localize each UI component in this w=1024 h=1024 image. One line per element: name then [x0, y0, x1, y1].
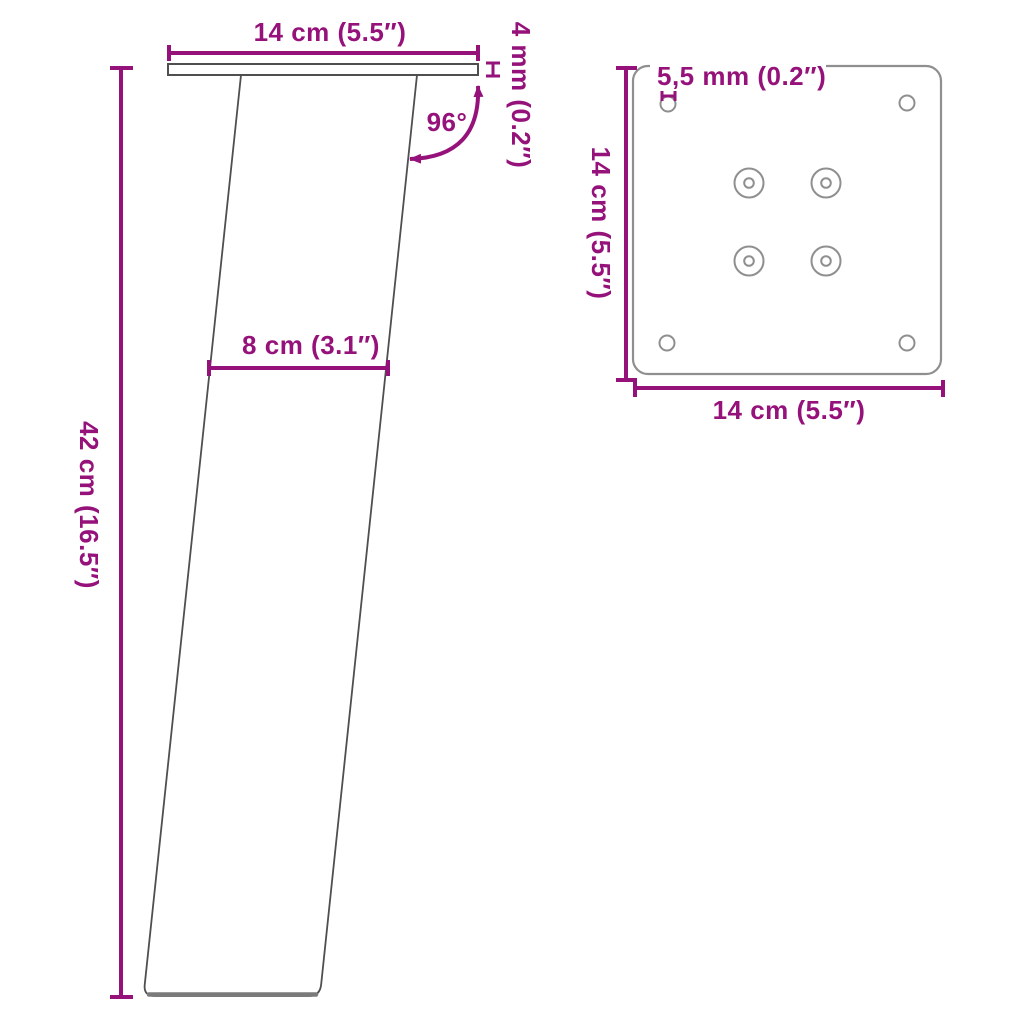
- leg-outline: [145, 75, 417, 996]
- dim-leg-width-label: 8 cm (3.1″): [242, 330, 380, 360]
- dim-plate-depth: 14 cm (5.5″): [586, 68, 637, 380]
- dim-angle-label: 96°: [427, 107, 468, 137]
- center-hole-washer-bottom-right: [812, 247, 841, 276]
- diagram-canvas: 14 cm (5.5″) 4 mm (0.2″) 96° 8 cm (3.1″)…: [0, 0, 1024, 1024]
- mounting-plate: [633, 66, 941, 374]
- corner-hole-top-right: [900, 96, 915, 111]
- dim-plate-width: 14 cm (5.5″): [635, 380, 943, 425]
- washer-inner: [744, 178, 754, 188]
- center-hole-washer-top-right: [812, 169, 841, 198]
- washer-inner: [821, 256, 831, 266]
- dim-plate-width-label: 14 cm (5.5″): [713, 395, 866, 425]
- washer-inner: [744, 256, 754, 266]
- dim-angle: 96°: [410, 86, 478, 159]
- dim-plate-thickness-label: 4 mm (0.2″): [506, 22, 536, 169]
- dim-plate-thickness: 4 mm (0.2″): [486, 22, 536, 169]
- dim-top-width: 14 cm (5.5″): [169, 17, 478, 61]
- center-hole-washer-top-left: [735, 169, 764, 198]
- corner-hole-bottom-right: [900, 336, 915, 351]
- dim-hole-diameter-label: 5,5 mm (0.2″): [657, 61, 826, 91]
- center-hole-washer-bottom-left: [735, 247, 764, 276]
- washer-inner: [821, 178, 831, 188]
- dim-top-width-label: 14 cm (5.5″): [254, 17, 407, 47]
- plate-top-view: 5,5 mm (0.2″) 14 cm (5.5″) 14 cm (5.5″): [586, 60, 943, 425]
- leg-top-plate: [168, 64, 478, 75]
- dim-height-label: 42 cm (16.5″): [74, 421, 104, 589]
- dim-plate-depth-label: 14 cm (5.5″): [586, 147, 616, 300]
- dim-height: 42 cm (16.5″): [74, 68, 133, 997]
- leg-side-view: 14 cm (5.5″) 4 mm (0.2″) 96° 8 cm (3.1″)…: [74, 17, 536, 997]
- product-dimension-diagram: 14 cm (5.5″) 4 mm (0.2″) 96° 8 cm (3.1″)…: [0, 0, 1024, 1024]
- corner-hole-bottom-left: [660, 336, 675, 351]
